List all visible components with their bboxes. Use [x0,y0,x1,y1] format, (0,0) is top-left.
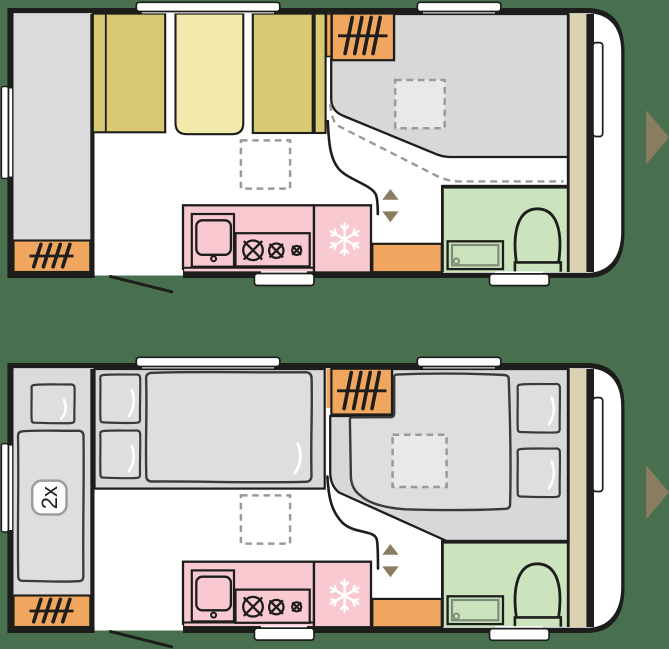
svg-text:2x: 2x [37,486,62,509]
